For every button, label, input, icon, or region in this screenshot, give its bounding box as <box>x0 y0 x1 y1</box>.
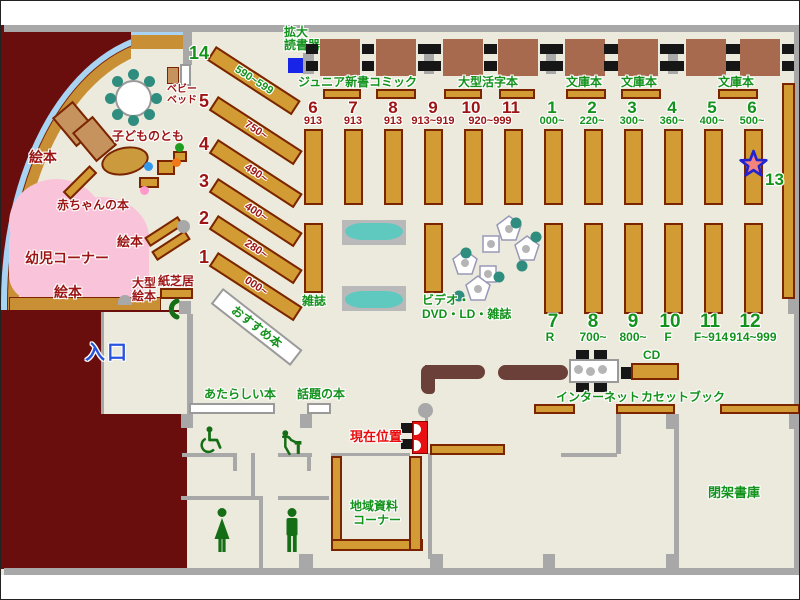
chair <box>144 76 155 87</box>
reading-table <box>565 39 605 76</box>
column-range: 913~919 <box>403 116 463 128</box>
infant-corner-label: 幼児コーナー <box>25 251 109 266</box>
wall-shelf <box>430 444 505 455</box>
shelf-number: 3 <box>199 172 209 191</box>
chair <box>128 115 139 126</box>
topical-books-label: 話題の本 <box>297 388 345 401</box>
shelf-number: 5 <box>199 92 209 111</box>
pillar <box>543 554 555 569</box>
marker-shape <box>401 423 412 433</box>
picture-books-label: 絵本 <box>29 150 57 165</box>
bookshelf <box>464 129 483 205</box>
pillar <box>666 554 679 569</box>
local-corner-label2: コーナー <box>353 514 401 527</box>
shelf-number: 2 <box>199 209 209 228</box>
chair <box>594 350 607 359</box>
cassette-books-label: カセットブック <box>641 391 725 404</box>
column-range: 220~ <box>572 116 612 128</box>
pillar <box>179 301 191 314</box>
wheelchair-icon <box>196 425 228 455</box>
entrance-label: 入口 <box>85 343 129 365</box>
cushion-green <box>175 143 184 152</box>
local-corner-shelf <box>331 456 342 551</box>
terminal <box>586 367 595 376</box>
video-shelf <box>424 223 443 293</box>
wall-shelf <box>616 404 675 414</box>
wall <box>233 453 237 471</box>
video-label-line1: ビデオ・ <box>422 294 470 307</box>
chair <box>576 350 589 359</box>
new-books-label: あたらしい本 <box>204 388 276 401</box>
shelf-number: 4 <box>199 135 209 154</box>
current-location-label: 現在位置 <box>350 430 402 444</box>
bench-cushion <box>345 291 403 308</box>
south-wall <box>4 568 800 575</box>
chair <box>151 93 162 104</box>
baby-books-label: 赤ちゃんの本 <box>57 199 129 212</box>
bookshelf <box>584 129 603 205</box>
bench-cushion <box>345 223 403 240</box>
column-range: 300~ <box>612 116 652 128</box>
section-bunko: 文庫本 <box>718 76 754 89</box>
wall <box>251 453 255 499</box>
bookshelf <box>504 129 523 205</box>
cushion-pink <box>140 186 149 195</box>
picture-books-label: 絵本 <box>54 285 82 300</box>
pillar <box>177 220 190 233</box>
bookshelf <box>744 223 763 314</box>
marker-shape <box>401 439 412 449</box>
terminal <box>598 365 607 374</box>
column-range: 914~999 <box>723 331 783 344</box>
bookshelf <box>424 129 443 205</box>
star-icon <box>738 150 769 181</box>
wall <box>187 314 193 414</box>
woman-icon <box>212 507 232 553</box>
reading-table <box>320 39 360 76</box>
terminal <box>574 365 583 374</box>
service-counter <box>425 365 485 379</box>
column-range: 920~999 <box>460 116 520 128</box>
pillar <box>300 414 312 428</box>
closed-stacks-label: 閉架書庫 <box>708 486 760 500</box>
large-picture-books-label: 大型 絵本 <box>132 277 156 303</box>
section-junior: ジュニア新書 <box>298 76 369 89</box>
magazines-label: 雑誌 <box>292 295 336 308</box>
column-range: 500~ <box>732 116 772 128</box>
chair <box>112 109 123 120</box>
column-range: R <box>530 331 570 344</box>
column-range: 700~ <box>573 331 613 344</box>
sign-head <box>418 403 433 418</box>
reading-table <box>376 39 416 76</box>
chair <box>128 69 139 80</box>
bookshelf <box>304 129 323 205</box>
wall-shelf <box>534 404 575 414</box>
local-corner-shelf <box>409 456 422 551</box>
kamishibai-label: 紙芝居 <box>158 275 194 288</box>
wall-shelf <box>720 404 800 414</box>
column-range: 000~ <box>532 116 572 128</box>
pillar <box>299 554 313 569</box>
north-wall <box>4 25 799 32</box>
large-picture-books-line1: 大型 <box>132 276 156 290</box>
baby-bed-line2: ベッド <box>167 95 197 106</box>
magnifier-device <box>288 58 303 73</box>
bookshelf <box>384 129 403 205</box>
library-floor-map: 590~599 750~ 490~ 400~ 280~ 000~ おすすめ本 1… <box>0 0 800 600</box>
chair <box>144 109 155 120</box>
man-icon <box>282 507 302 553</box>
pillar <box>666 414 679 429</box>
bookshelf <box>344 129 363 205</box>
wall <box>278 496 329 500</box>
end-shelf <box>566 89 606 99</box>
video-label-line2: DVD・LD・雑誌 <box>422 308 511 321</box>
wall <box>674 414 679 555</box>
picture-books-label: 絵本 <box>117 235 143 249</box>
curved-wall <box>131 35 191 49</box>
magnifier-line1: 拡大 <box>284 25 308 39</box>
baby-bed <box>180 64 191 86</box>
bookshelf <box>664 129 683 205</box>
bookshelf-13 <box>782 83 795 299</box>
section-bunko: 文庫本 <box>566 76 602 89</box>
column-range: 913 <box>293 116 333 128</box>
cd-shelf <box>631 363 679 380</box>
internet-label: インターネット <box>556 391 640 404</box>
telephone-icon <box>164 298 180 320</box>
wall <box>561 453 617 457</box>
magazine-shelf <box>304 223 323 293</box>
cushion-blue <box>144 162 153 171</box>
wall <box>307 453 311 471</box>
pillar <box>118 295 132 305</box>
wall <box>331 453 410 456</box>
wall <box>259 496 263 569</box>
service-counter <box>498 365 568 380</box>
wall <box>428 453 432 559</box>
reading-table <box>498 39 538 76</box>
cd-label: CD <box>643 349 660 362</box>
large-picture-books-line2: 絵本 <box>132 289 156 303</box>
bookshelf <box>704 129 723 205</box>
bookshelf <box>704 223 723 314</box>
pillar <box>181 414 193 428</box>
reading-table <box>686 39 726 76</box>
chair <box>105 93 116 104</box>
section-comic: コミック <box>369 76 417 89</box>
pillar <box>789 414 800 429</box>
shelf-number: 14 <box>189 44 209 63</box>
column-range: 360~ <box>652 116 692 128</box>
study-carrels <box>447 211 547 306</box>
column-range: 913 <box>333 116 373 128</box>
baby-bed-side <box>167 67 179 84</box>
pillar <box>788 299 800 314</box>
column-range: 800~ <box>613 331 653 344</box>
section-bunko: 文庫本 <box>621 76 657 89</box>
kodomono-tomo-label: 子どものとも <box>112 130 184 143</box>
bookshelf <box>584 223 603 314</box>
bookshelf <box>664 223 683 314</box>
bookshelf <box>544 129 563 205</box>
drinking-fountain-icon <box>277 428 304 455</box>
bookshelf <box>624 129 643 205</box>
reading-table <box>740 39 780 76</box>
section-large-print: 大型活字本 <box>458 76 518 89</box>
wall <box>616 414 621 454</box>
baby-bed-line1: ベビー <box>167 84 197 95</box>
local-corner-label1: 地域資料 <box>350 500 398 513</box>
bookshelf <box>624 223 643 314</box>
chair <box>112 76 123 87</box>
new-books-shelf <box>189 403 275 414</box>
cushion-orange <box>172 158 181 167</box>
reading-table <box>443 39 483 76</box>
shelf-number: 1 <box>199 248 209 267</box>
reading-table <box>618 39 658 76</box>
topical-books-shelf <box>307 403 331 414</box>
baby-bed-label: ベビー ベッド <box>167 85 197 107</box>
wall <box>181 496 262 500</box>
column-range: 400~ <box>692 116 732 128</box>
